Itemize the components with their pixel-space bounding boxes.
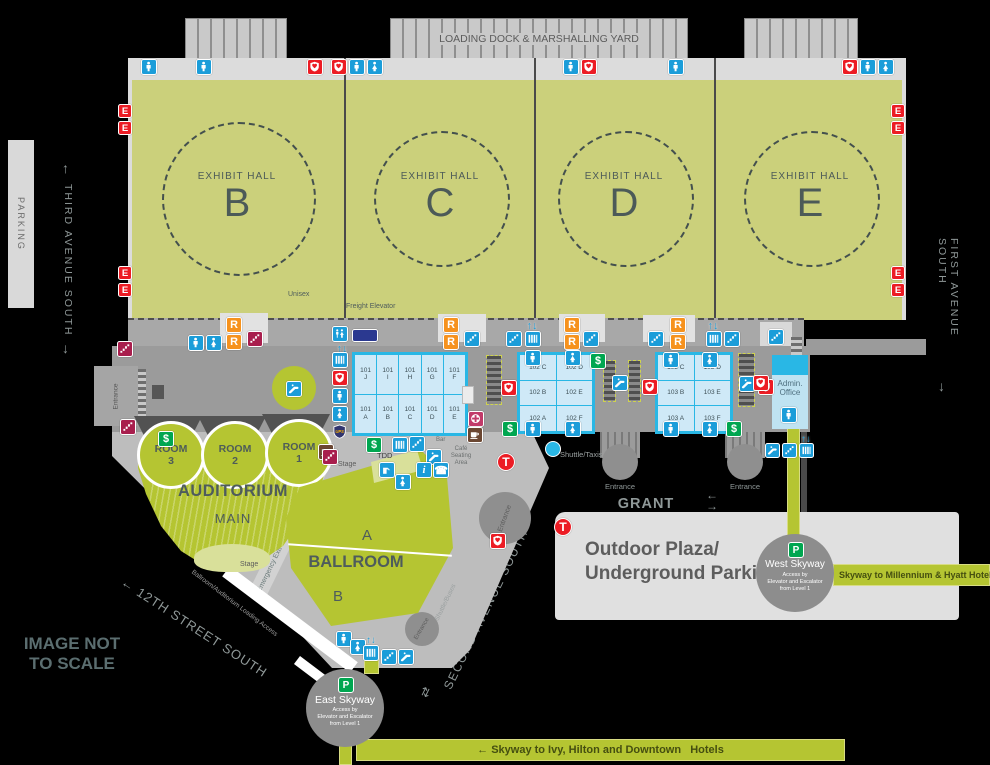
mens-restroom-icon bbox=[196, 59, 212, 75]
womens-restroom-icon bbox=[332, 406, 348, 422]
mens-restroom-icon bbox=[663, 421, 679, 437]
womens-restroom-icon bbox=[367, 59, 383, 75]
escalator-icon bbox=[612, 375, 628, 391]
stairs-icon bbox=[464, 331, 480, 347]
emergency-exit-icon: E bbox=[891, 104, 905, 118]
emergency-exit-icon: E bbox=[891, 121, 905, 135]
ups-store-icon: UPS bbox=[330, 422, 349, 441]
atm-icon: $ bbox=[726, 421, 742, 437]
elevator-icon bbox=[363, 645, 379, 661]
stairs-icon bbox=[724, 331, 740, 347]
recycling-icon: R bbox=[226, 317, 242, 333]
stairs-icon bbox=[381, 649, 397, 665]
unisex-restroom-icon bbox=[332, 326, 348, 342]
stairs-icon bbox=[583, 331, 599, 347]
stairs-icon bbox=[768, 329, 784, 345]
freight-elevator bbox=[352, 329, 378, 342]
mens-restroom-icon bbox=[349, 59, 365, 75]
emergency-stairs-icon bbox=[247, 331, 263, 347]
recycling-icon: R bbox=[670, 317, 686, 333]
shuttle-stop-marker bbox=[545, 441, 561, 457]
svg-text:UPS: UPS bbox=[335, 429, 344, 434]
mens-restroom-icon bbox=[141, 59, 157, 75]
aed-icon bbox=[490, 533, 506, 549]
metro-transit-icon: T bbox=[497, 453, 515, 471]
elevator-icon bbox=[799, 443, 814, 458]
recycling-icon: R bbox=[443, 317, 459, 333]
atm-icon: $ bbox=[158, 431, 174, 447]
coffee-shop-icon bbox=[467, 427, 483, 443]
emergency-stairs-icon bbox=[117, 341, 133, 357]
drinking-fountain-icon bbox=[379, 462, 395, 478]
convention-center-floor-plan: PARKING ↑ THIRD AVENUE SOUTH ↓ FIRST AVE… bbox=[0, 0, 990, 765]
elevator-icon bbox=[392, 437, 408, 453]
aed-icon bbox=[501, 380, 517, 396]
mens-restroom-icon bbox=[188, 335, 204, 351]
emergency-exit-icon: E bbox=[891, 266, 905, 280]
emergency-stairs-icon bbox=[322, 449, 338, 465]
womens-restroom-icon bbox=[565, 421, 581, 437]
icon-layer: EEEEEEEERRRR↑↓RRRR↑↓↑↓UPS$$$↑↓$i☎$↑↓TT bbox=[0, 0, 990, 765]
recycling-icon: R bbox=[443, 334, 459, 350]
aed-icon bbox=[331, 59, 347, 75]
aed-icon bbox=[642, 379, 658, 395]
emergency-exit-icon: E bbox=[118, 121, 132, 135]
information-icon: i bbox=[416, 462, 432, 478]
mens-restroom-icon bbox=[563, 59, 579, 75]
aed-icon bbox=[753, 375, 769, 391]
recycling-icon: R bbox=[670, 334, 686, 350]
stairs-icon bbox=[648, 331, 664, 347]
aed-icon bbox=[332, 370, 348, 386]
recycling-icon: R bbox=[564, 334, 580, 350]
first-aid-icon bbox=[468, 411, 484, 427]
mens-restroom-icon bbox=[525, 421, 541, 437]
atm-icon: $ bbox=[502, 421, 518, 437]
elevator-icon bbox=[332, 352, 348, 368]
mens-restroom-icon bbox=[525, 350, 541, 366]
emergency-exit-icon: E bbox=[118, 283, 132, 297]
recycling-icon: R bbox=[226, 334, 242, 350]
emergency-exit-icon: E bbox=[118, 266, 132, 280]
womens-restroom-icon bbox=[206, 335, 222, 351]
emergency-exit-icon: E bbox=[891, 283, 905, 297]
womens-restroom-icon bbox=[395, 474, 411, 490]
metro-transit-icon: T bbox=[554, 518, 572, 536]
recycling-icon: R bbox=[564, 317, 580, 333]
escalator-icon bbox=[765, 443, 780, 458]
elevator-icon bbox=[525, 331, 541, 347]
mens-restroom-icon bbox=[668, 59, 684, 75]
telephone-icon: ☎ bbox=[433, 462, 449, 478]
escalator-icon bbox=[398, 649, 414, 665]
emergency-exit-icon: E bbox=[118, 104, 132, 118]
womens-restroom-icon bbox=[702, 421, 718, 437]
womens-restroom-icon bbox=[565, 350, 581, 366]
escalator-icon bbox=[286, 381, 302, 397]
aed-icon bbox=[842, 59, 858, 75]
emergency-stairs-icon bbox=[120, 419, 136, 435]
atm-icon: $ bbox=[366, 437, 382, 453]
stairs-icon bbox=[782, 443, 797, 458]
atm-icon: $ bbox=[590, 353, 606, 369]
womens-restroom-icon bbox=[702, 352, 718, 368]
aed-icon bbox=[581, 59, 597, 75]
mens-restroom-icon bbox=[663, 352, 679, 368]
mens-restroom-icon bbox=[332, 388, 348, 404]
elevator-icon bbox=[706, 331, 722, 347]
admin-elevator-icon bbox=[781, 407, 797, 423]
womens-restroom-icon bbox=[878, 59, 894, 75]
stairs-icon bbox=[409, 436, 425, 452]
stairs-icon bbox=[506, 331, 522, 347]
aed-icon bbox=[307, 59, 323, 75]
mens-restroom-icon bbox=[860, 59, 876, 75]
